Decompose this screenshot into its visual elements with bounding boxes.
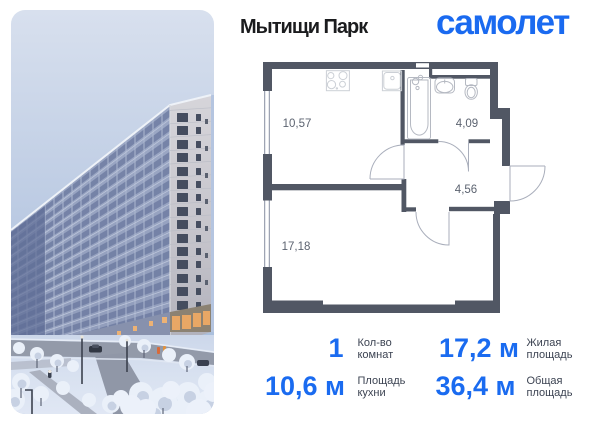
svg-text:17,18: 17,18 bbox=[282, 241, 311, 253]
svg-text:10,57: 10,57 bbox=[283, 118, 312, 130]
svg-text:4,09: 4,09 bbox=[456, 118, 478, 130]
svg-text:4,56: 4,56 bbox=[455, 184, 477, 196]
